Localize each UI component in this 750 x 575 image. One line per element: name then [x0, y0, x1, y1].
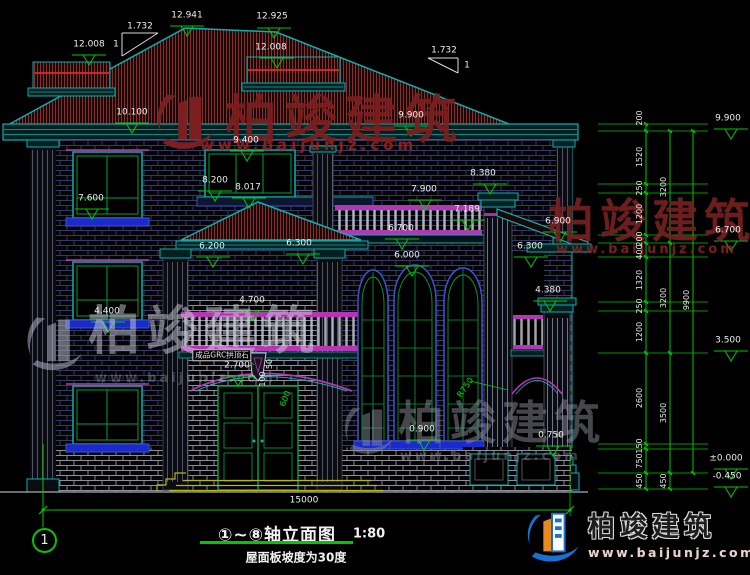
dimension-graphic	[286, 254, 320, 264]
dimension-marker-layer	[0, 0, 750, 575]
watermark-left-text: 柏竣建筑	[88, 306, 320, 358]
watermark-center-url: www.baijunjz.com	[400, 450, 581, 463]
dimension-graphic	[451, 220, 485, 230]
watermark-right-text: 柏竣建筑	[548, 198, 750, 244]
watermark-center-logo-icon	[342, 398, 398, 462]
dimension-graphic	[514, 257, 548, 267]
watermark-top-logo-icon	[150, 88, 224, 154]
watermark-left-logo-icon	[24, 306, 88, 380]
axis-number: 1	[40, 533, 48, 548]
cad-elevation-screenshot: 柏竣建筑 www.baijunjz.com 柏竣建筑 www.baijunjz.…	[0, 0, 750, 575]
dimension-graphic	[473, 184, 507, 194]
dimension-graphic	[260, 58, 294, 68]
dimension-graphic	[395, 266, 429, 276]
dimension-graphic	[385, 239, 419, 249]
brand-logo-icon	[524, 505, 582, 563]
dimension-graphic	[714, 469, 748, 479]
watermark-right-url: www.baijunjz.com	[556, 243, 737, 256]
dimension-graphic	[198, 191, 232, 201]
dimension-graphic	[72, 55, 106, 65]
watermark-top-url: www.baijunjz.com	[200, 138, 417, 153]
watermark-left-url: www.baijunjz.com	[95, 372, 276, 385]
roof-slope-note: 屋面板坡度为30度	[246, 549, 347, 566]
dimension-graphic	[75, 209, 109, 219]
dimension-graphic	[170, 26, 204, 36]
dimension-graphic	[533, 301, 567, 311]
dimension-graphic	[115, 123, 149, 133]
dimension-graphic	[196, 257, 230, 267]
dimension-graphic	[232, 198, 266, 208]
dimension-graphic	[714, 129, 748, 139]
drawing-scale: 1:80	[353, 527, 385, 542]
brand-logo: 柏竣建筑 www.baijunjz.com	[524, 505, 750, 563]
watermark-center-text: 柏竣建筑	[398, 400, 606, 446]
brand-name: 柏竣建筑	[588, 505, 750, 544]
brand-url: www.baijunjz.com	[588, 545, 750, 560]
dimension-graphic	[714, 351, 748, 361]
dimension-graphic	[257, 28, 291, 38]
dimension-graphic	[714, 487, 748, 497]
dimension-graphic	[408, 200, 442, 210]
axis-bubble-1: 1	[32, 528, 57, 553]
title-underline	[200, 541, 353, 544]
